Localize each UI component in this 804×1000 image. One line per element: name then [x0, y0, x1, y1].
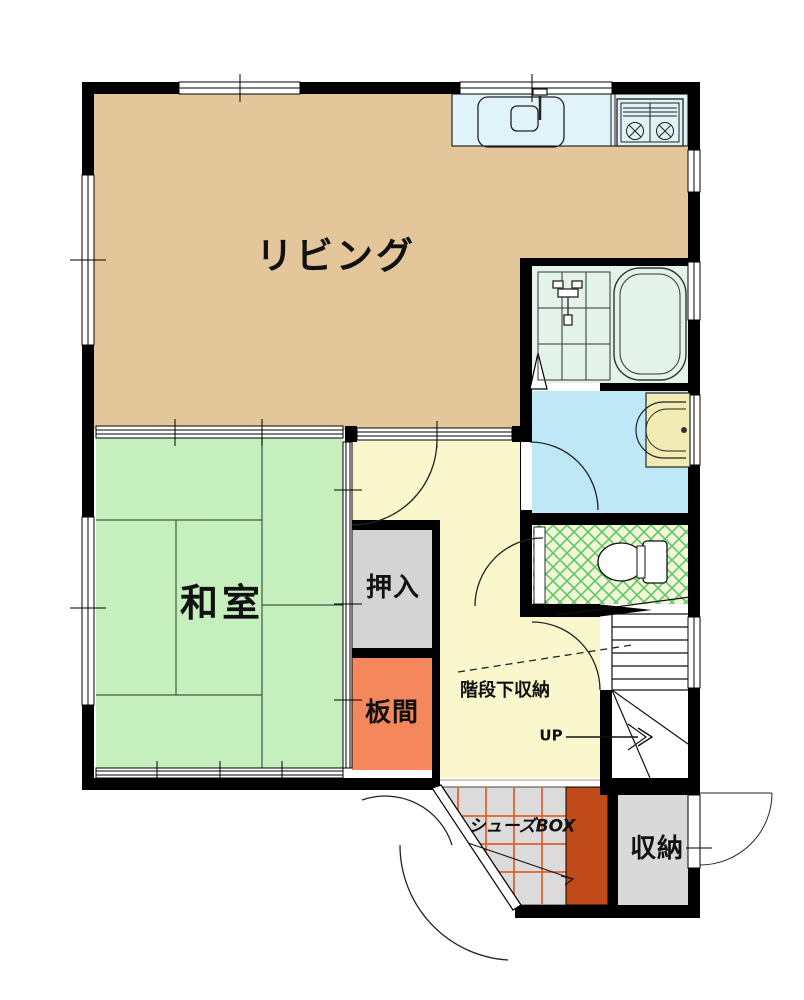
door-arc-storage [700, 793, 772, 865]
label-up: UP [539, 729, 562, 744]
label-storage: 収納 [630, 836, 684, 862]
floor-plan: リビング 和室 押入 板間 階段下収納 UP シューズBOX 収納 [0, 0, 804, 1000]
label-washitsu: 和室 [180, 584, 264, 622]
storage-door-gap [686, 795, 712, 868]
shoebox-cabinet [566, 787, 608, 905]
window-right-bath [688, 262, 700, 320]
window-right-living [688, 150, 700, 192]
window-right-stairs [688, 617, 700, 688]
label-living: リビング [256, 238, 416, 275]
label-stair-storage: 階段下収納 [460, 682, 550, 700]
door-arc-entry-small [362, 796, 452, 845]
label-shoes-box: シューズBOX [468, 819, 575, 836]
entry-step [440, 778, 600, 787]
storage-door [700, 793, 772, 865]
label-itanoma: 板間 [365, 700, 419, 726]
stairs-area [600, 614, 688, 778]
kitchen-counter [452, 94, 688, 146]
label-oshiire: 押入 [366, 575, 420, 601]
washroom-door-gap [521, 442, 532, 510]
toilet-icon [598, 541, 667, 583]
